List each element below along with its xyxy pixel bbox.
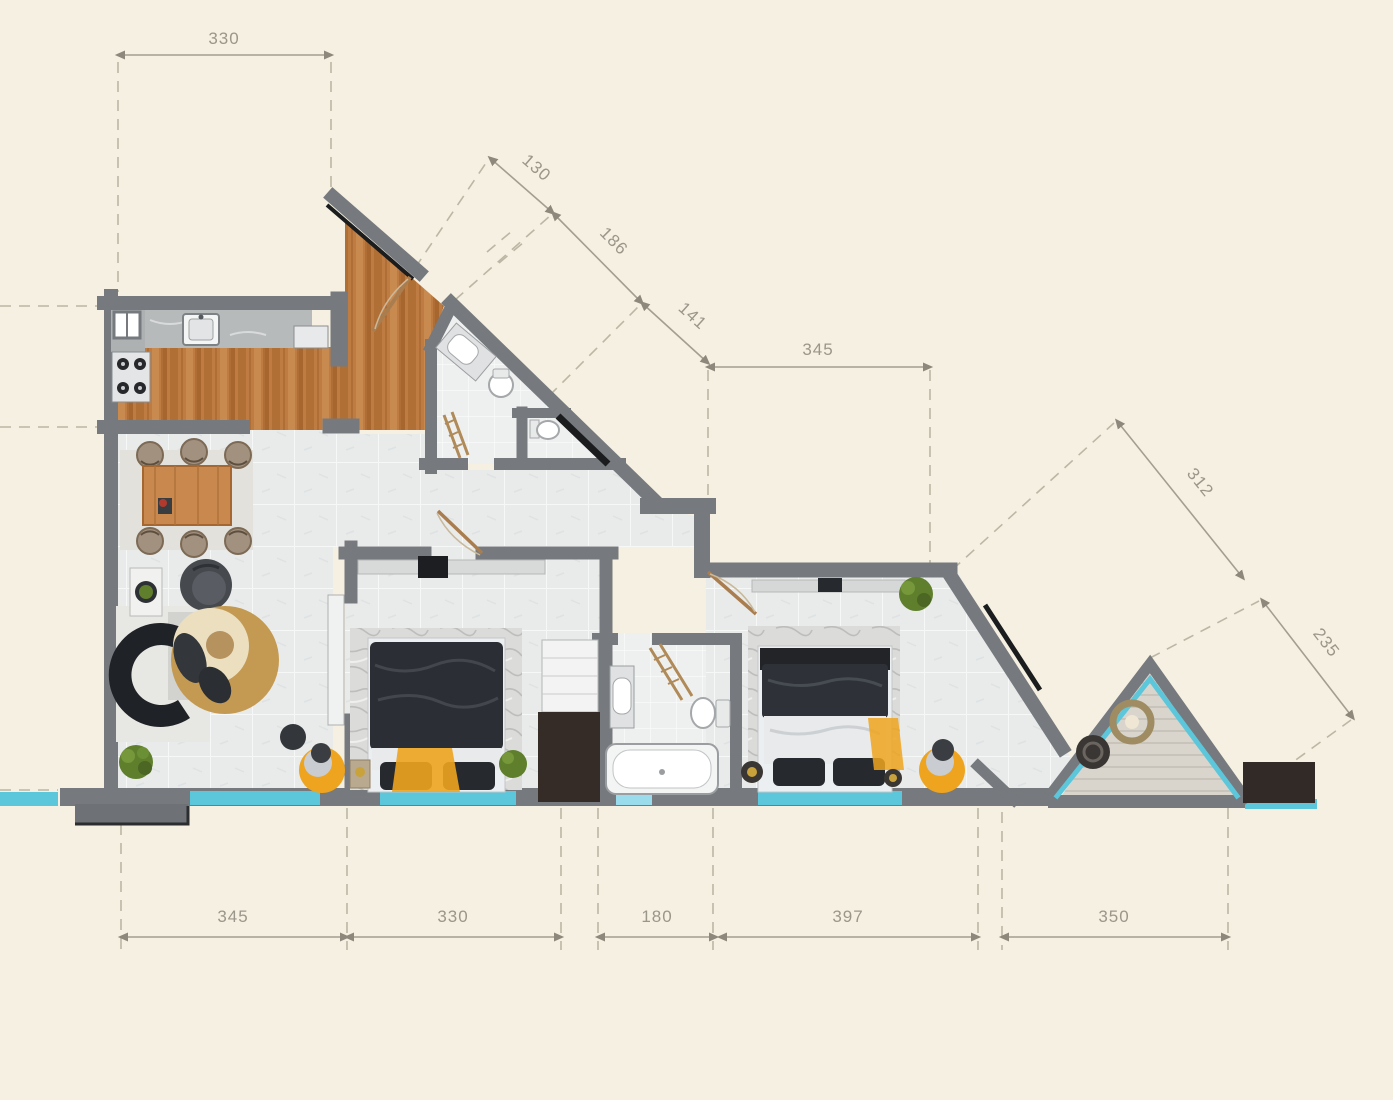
bed1-throw xyxy=(392,748,460,792)
dim-235: 235 xyxy=(1309,624,1343,660)
kitchen-stove xyxy=(112,352,150,402)
dim-b330: 330 xyxy=(437,907,468,926)
dining-centerpiece xyxy=(158,498,172,514)
bedroom2-window-glass xyxy=(758,791,902,805)
pouf-tan xyxy=(206,631,234,659)
dim-312: 312 xyxy=(1183,464,1218,500)
dim-mid-345: 345 xyxy=(802,340,833,359)
bed2 xyxy=(758,646,904,792)
dining-area xyxy=(120,439,253,557)
dim-b180: 180 xyxy=(641,907,672,926)
living-window-glass xyxy=(190,791,320,805)
dim-130: 130 xyxy=(519,150,555,185)
balcony-table xyxy=(1076,735,1110,769)
bath2-toilet xyxy=(691,698,730,728)
plant-living xyxy=(119,745,153,779)
kitchen-window xyxy=(114,312,140,338)
bed1-tv xyxy=(418,556,448,578)
bed1 xyxy=(368,638,505,792)
bed1-plant xyxy=(499,750,527,778)
balcony-planter xyxy=(1243,762,1315,803)
bed1-shelf xyxy=(358,560,545,574)
wardrobe-dark xyxy=(538,712,600,802)
bath2-sink xyxy=(610,666,634,728)
armchair xyxy=(180,559,232,611)
dim-top: 330 xyxy=(208,29,239,48)
wc-toilet xyxy=(530,420,559,439)
entrance-step xyxy=(75,804,188,824)
dim-141: 141 xyxy=(675,298,711,333)
dim-186: 186 xyxy=(596,223,632,259)
bed2-plant xyxy=(899,577,933,611)
bath2-tub xyxy=(606,744,718,794)
bedroom1-wardrobe xyxy=(538,640,600,802)
bed2-tv xyxy=(818,578,842,592)
bed2-pillow-left xyxy=(773,758,825,786)
bedroom1-window-glass xyxy=(380,791,516,805)
kitchen-sink xyxy=(183,314,219,345)
bed2-throw xyxy=(868,718,904,770)
dim-b397: 397 xyxy=(832,907,863,926)
floor-plan-svg: 330 130 186 141 345 312 235 345 330 180 … xyxy=(0,0,1393,1100)
dim-b350: 350 xyxy=(1098,907,1129,926)
neighbor-window-glass xyxy=(0,792,58,806)
bath1-toilet xyxy=(489,369,513,397)
bed1-sliding-door xyxy=(328,595,344,725)
dim-b345: 345 xyxy=(217,907,248,926)
kitchen-appliance xyxy=(294,326,328,348)
side-table xyxy=(130,568,162,616)
floor-plan: 330 130 186 141 345 312 235 345 330 180 … xyxy=(0,0,1393,1100)
